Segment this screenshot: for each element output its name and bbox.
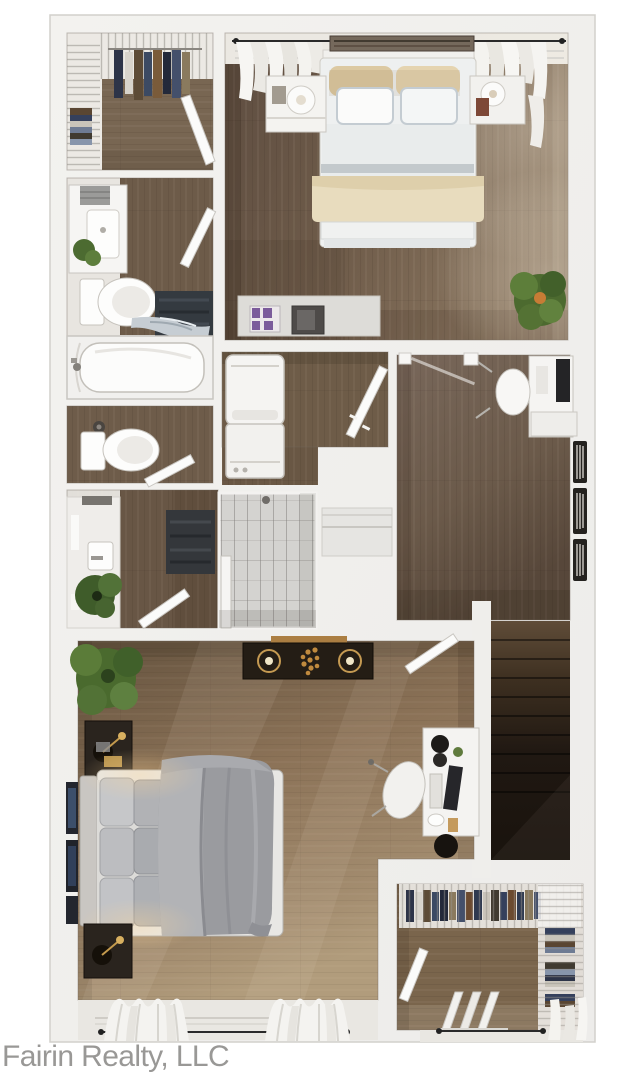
svg-text:Fairin Realty, LLC: Fairin Realty, LLC	[2, 1040, 229, 1073]
